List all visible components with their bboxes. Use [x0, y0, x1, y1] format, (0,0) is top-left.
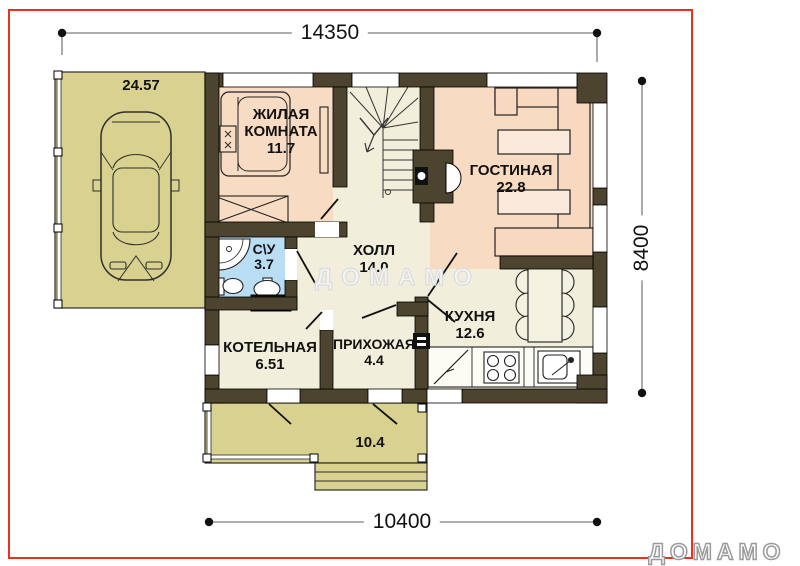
- boiler-area: 6.51: [213, 356, 327, 373]
- label-entry: ПРИХОЖАЯ 4.4: [328, 336, 420, 368]
- sink-icon: [538, 351, 580, 383]
- brand-logo: ДОМАМО: [648, 539, 785, 566]
- bathroom-area: 3.7: [253, 257, 276, 272]
- label-boiler: КОТЕЛЬНАЯ 6.51: [213, 339, 327, 373]
- terrace-area: 10.4: [355, 434, 384, 451]
- label-bedroom: ЖИЛАЯ КОМНАТА 11.7: [233, 106, 329, 157]
- dimension-top: 14350: [292, 21, 368, 45]
- entry-name: ПРИХОЖАЯ: [328, 336, 420, 352]
- bedroom-area: 11.7: [233, 140, 329, 157]
- living-area: 22.8: [456, 179, 566, 196]
- bedroom-name: ЖИЛАЯ КОМНАТА: [233, 106, 329, 140]
- label-kitchen: КУХНЯ 12.6: [445, 308, 495, 342]
- watermark-center: ДОМАМО: [315, 264, 481, 292]
- wardrobe-bedroom: [214, 196, 288, 223]
- label-terrace-area: 10.4: [355, 434, 384, 451]
- label-bathroom: С\У 3.7: [253, 242, 276, 272]
- carport: [54, 71, 205, 308]
- toilet: [216, 278, 243, 295]
- label-living: ГОСТИНАЯ 22.8: [456, 162, 566, 196]
- kitchen-name: КУХНЯ: [445, 308, 495, 325]
- boiler-name: КОТЕЛЬНАЯ: [213, 339, 327, 356]
- dining-set: [516, 266, 574, 342]
- carport-area: 24.57: [122, 77, 160, 94]
- stove-icon: [484, 352, 519, 383]
- entry-area: 4.4: [328, 352, 420, 368]
- kitchen-area: 12.6: [445, 325, 495, 342]
- floor-plan-page: 14350 8400 10400 24.57 ЖИЛАЯ КОМНАТА 11.…: [0, 0, 800, 566]
- dimension-right: 8400: [630, 216, 654, 281]
- bathroom-name: С\У: [253, 242, 276, 257]
- living-name: ГОСТИНАЯ: [456, 162, 566, 179]
- terrace: [203, 403, 427, 490]
- hall-name: ХОЛЛ: [353, 242, 395, 259]
- label-carport-area: 24.57: [122, 77, 160, 94]
- dimension-bottom: 10400: [364, 510, 440, 534]
- kitchen-counter: [428, 347, 593, 387]
